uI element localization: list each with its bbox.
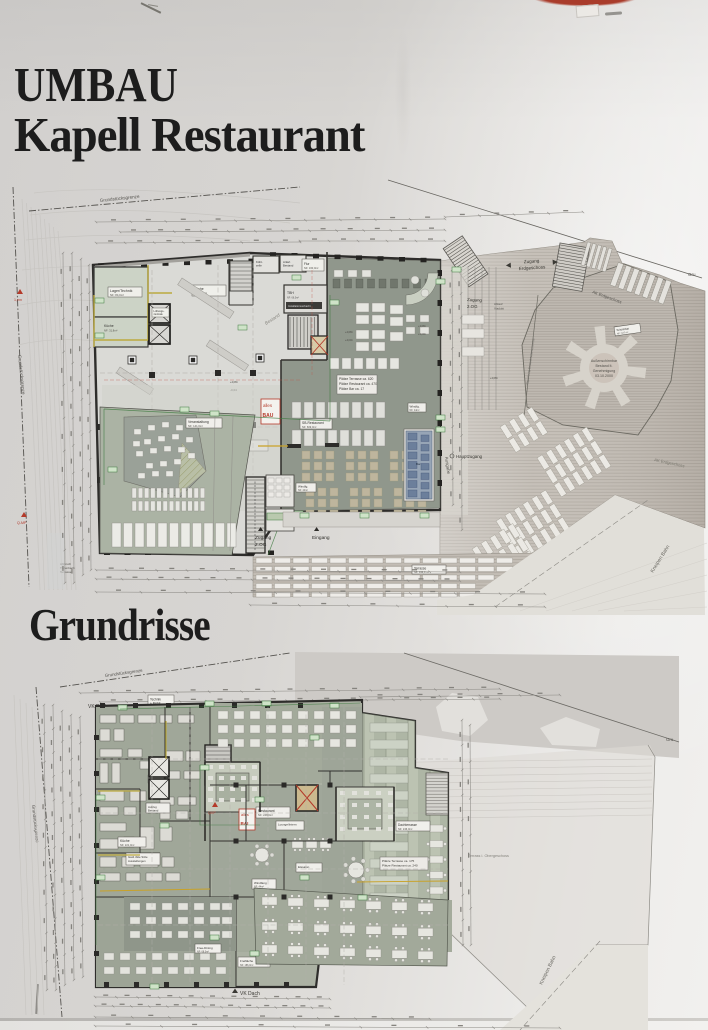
svg-text:2.OG: 2.OG [467, 304, 478, 309]
svg-text:+0,04: +0,04 [418, 332, 426, 336]
svg-text:+0,84: +0,84 [230, 380, 238, 384]
svg-text:Freifläche: Freifläche [240, 959, 254, 963]
svg-text:Grundstücksgrenze: Grundstücksgrenze [17, 355, 26, 396]
svg-text:Bestand: Bestand [148, 809, 159, 813]
svg-text:Genehmigung: Genehmigung [593, 369, 616, 373]
svg-text:1,mn: 1,mn [14, 298, 22, 302]
svg-text:03.10.2000: 03.10.2000 [595, 374, 613, 378]
svg-text:NF: 609,0m²: NF: 609,0m² [302, 425, 317, 429]
svg-text:NF: 246,0m²: NF: 246,0m² [398, 827, 413, 831]
svg-text:NF: 44m²: NF: 44m² [298, 489, 308, 492]
svg-text:NF: 44m²: NF: 44m² [410, 409, 420, 412]
svg-text:Gru: Gru [688, 272, 696, 277]
svg-text:Gru: Gru [666, 737, 674, 742]
svg-text:Ablauf: Ablauf [494, 302, 503, 306]
svg-text:Windfg.: Windfg. [410, 405, 420, 409]
svg-text:NF: 84,0m²: NF: 84,0m² [110, 293, 124, 297]
svg-text:Dachterrasse: Dachterrasse [398, 823, 417, 827]
svg-text:Eissalon: Eissalon [298, 865, 310, 869]
svg-text:+0,84: +0,84 [490, 376, 498, 380]
svg-text:NF: 66,0m²: NF: 66,0m² [287, 297, 299, 300]
svg-text:Plätze Restaurant ca. 240: Plätze Restaurant ca. 240 [382, 864, 418, 868]
svg-text:SB-Restaurant: SB-Restaurant [302, 421, 324, 425]
svg-text:Küche: Küche [120, 839, 130, 843]
svg-text:Eingang: Eingang [312, 535, 330, 541]
svg-text:NF: 221,0m²: NF: 221,0m² [120, 843, 135, 847]
svg-text:Zugang: Zugang [467, 297, 483, 303]
svg-text:+0,04: +0,04 [345, 338, 353, 342]
svg-text:Plätze Restaurant ca. 470: Plätze Restaurant ca. 470 [339, 382, 377, 386]
svg-text:Bestand lt.: Bestand lt. [596, 364, 613, 368]
svg-text:Windfang: Windfang [254, 881, 267, 885]
svg-text:NF: 68,0m²: NF: 68,0m² [197, 951, 209, 954]
svg-text:Free-Dining: Free-Dining [197, 946, 213, 950]
svg-text:Grundstücksgrenze: Grundstücksgrenze [104, 668, 143, 678]
svg-text:Lounge/Intern: Lounge/Intern [278, 823, 297, 827]
svg-text:Viadukt: Viadukt [494, 307, 504, 311]
svg-text:Hauptzugang: Hauptzugang [456, 454, 483, 459]
svg-text:Außenschirmbar: Außenschirmbar [591, 359, 618, 363]
svg-text:Q-MP: Q-MP [17, 521, 27, 525]
svg-text:Zugang: Zugang [255, 535, 272, 541]
svg-text:alles: alles [263, 403, 273, 408]
svg-text:NF: 160,0m²: NF: 160,0m² [304, 266, 319, 270]
svg-text:NF: 31,8m²: NF: 31,8m² [104, 329, 118, 333]
svg-text:Plätze Terrasse ca. 175: Plätze Terrasse ca. 175 [382, 859, 415, 863]
svg-text:Grundstücksgrenze: Grundstücksgrenze [31, 805, 40, 844]
svg-text:Küche: Küche [104, 324, 114, 328]
svg-text:alles: alles [241, 813, 249, 817]
svg-text:NF: 186,0m²: NF: 186,0m² [240, 964, 253, 967]
svg-text:Plätze Bar ca. 17: Plätze Bar ca. 17 [339, 387, 364, 391]
svg-text:NF: 248,0m²: NF: 248,0m² [258, 813, 273, 817]
svg-text:Flur: Flur [304, 262, 310, 266]
svg-text:+0,84: +0,84 [345, 330, 353, 334]
svg-text:+0,84: +0,84 [418, 324, 426, 328]
svg-text:Bestand: Bestand [283, 264, 294, 268]
svg-text:Terrass i. Obergeschoss: Terrass i. Obergeschoss [468, 854, 509, 858]
svg-text:zentrale: zentrale [154, 312, 164, 316]
svg-text:NF: 141,0m²: NF: 141,0m² [188, 424, 203, 428]
svg-text:2.OG: 2.OG [255, 542, 267, 548]
svg-text:Bar: Bar [416, 462, 421, 466]
svg-text:Ausstellungen: Ausstellungen [128, 859, 146, 863]
svg-text:Veranstaltung: Veranstaltung [188, 420, 209, 424]
svg-text:VK Dach: VK Dach [240, 991, 260, 997]
svg-text:zelle: zelle [256, 264, 262, 268]
svg-text:Installationsschacht: Installationsschacht [288, 304, 311, 308]
svg-text:TBH: TBH [287, 291, 294, 295]
svg-text:Plätze Terrasse ca. 620: Plätze Terrasse ca. 620 [339, 377, 374, 381]
svg-text:Windfg.: Windfg. [298, 485, 308, 489]
